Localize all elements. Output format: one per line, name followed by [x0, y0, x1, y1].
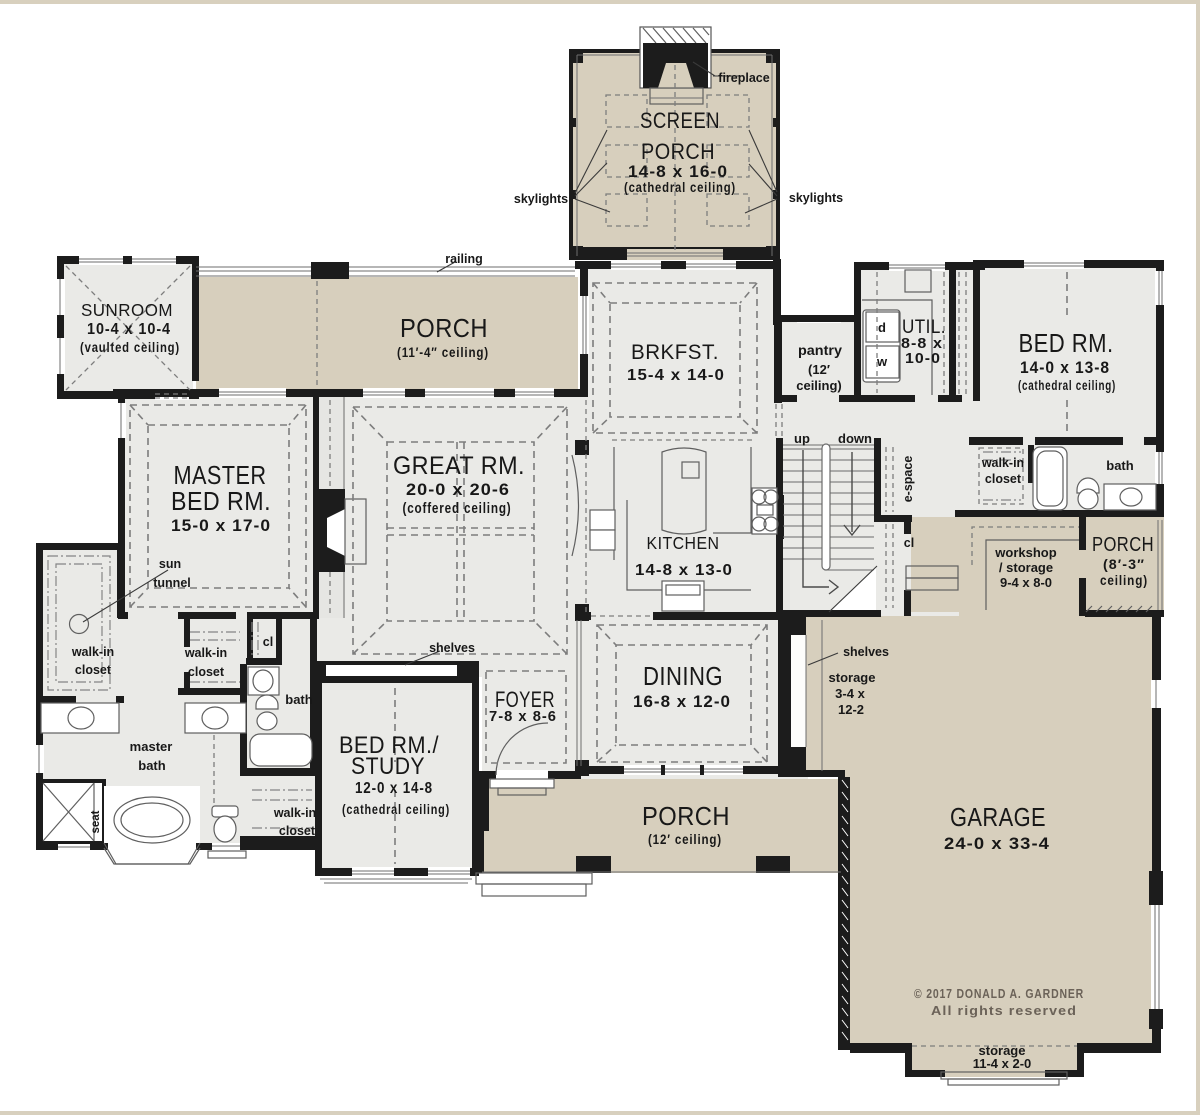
svg-text:down: down	[838, 431, 872, 446]
svg-text:11-4 x 2-0: 11-4 x 2-0	[973, 1056, 1032, 1071]
svg-text:(12′ ceiling): (12′ ceiling)	[648, 831, 722, 847]
svg-text:(coffered ceiling): (coffered ceiling)	[403, 501, 512, 517]
svg-text:12-2: 12-2	[838, 702, 864, 717]
svg-text:14-8 x 13-0: 14-8 x 13-0	[635, 562, 733, 579]
svg-text:16-8 x 12-0: 16-8 x 12-0	[633, 693, 731, 711]
svg-text:PORCH: PORCH	[1092, 534, 1154, 556]
svg-text:closet: closet	[75, 663, 112, 677]
svg-text:(8′-3″: (8′-3″	[1103, 557, 1145, 572]
svg-text:bath: bath	[138, 758, 166, 773]
svg-text:SCREEN: SCREEN	[640, 108, 720, 133]
svg-text:ceiling): ceiling)	[796, 378, 842, 393]
svg-text:closet: closet	[279, 824, 316, 838]
svg-text:skylights: skylights	[789, 191, 843, 205]
svg-text:walk-in: walk-in	[184, 646, 227, 660]
svg-text:master: master	[130, 739, 173, 754]
svg-text:closet: closet	[188, 665, 225, 679]
svg-text:cl: cl	[263, 635, 273, 649]
svg-text:ceiling): ceiling)	[1100, 573, 1148, 588]
svg-text:shelves: shelves	[429, 641, 475, 655]
svg-text:(cathedral ceiling): (cathedral ceiling)	[1018, 378, 1116, 393]
svg-text:fireplace: fireplace	[718, 71, 769, 85]
svg-text:up: up	[794, 431, 810, 446]
svg-text:3-4 x: 3-4 x	[835, 686, 865, 701]
svg-text:GARAGE: GARAGE	[950, 802, 1046, 832]
svg-text:All rights reserved: All rights reserved	[931, 1003, 1077, 1018]
svg-text:14-0 x 13-8: 14-0 x 13-8	[1020, 359, 1110, 377]
svg-text:sun: sun	[159, 557, 181, 571]
svg-text:d: d	[878, 320, 886, 335]
svg-text:walk-in: walk-in	[273, 806, 316, 820]
svg-text:closet: closet	[985, 472, 1022, 486]
svg-text:DINING: DINING	[643, 661, 723, 691]
svg-text:20-0 x 20-6: 20-0 x 20-6	[406, 480, 510, 499]
svg-text:(cathedral ceiling): (cathedral ceiling)	[624, 179, 736, 195]
svg-text:24-0 x 33-4: 24-0 x 33-4	[944, 834, 1050, 853]
svg-text:PORCH: PORCH	[642, 801, 730, 831]
svg-text:(12′: (12′	[808, 362, 830, 377]
svg-text:KITCHEN: KITCHEN	[647, 533, 720, 553]
svg-text:storage: storage	[829, 670, 876, 685]
svg-text:PORCH: PORCH	[400, 313, 488, 343]
svg-text:bath: bath	[1106, 458, 1134, 473]
svg-text:bath: bath	[285, 692, 313, 707]
svg-text:/ storage: / storage	[999, 560, 1053, 575]
svg-text:12-0 x 14-8: 12-0 x 14-8	[355, 780, 433, 797]
svg-text:seat: seat	[90, 810, 102, 833]
svg-text:(vaulted ceiling): (vaulted ceiling)	[80, 340, 180, 355]
svg-text:© 2017 DONALD A. GARDNER: © 2017 DONALD A. GARDNER	[914, 986, 1084, 1001]
svg-text:workshop: workshop	[994, 545, 1056, 560]
svg-text:cl: cl	[904, 536, 914, 550]
svg-text:e-space: e-space	[901, 456, 915, 503]
svg-text:SUNROOM: SUNROOM	[81, 300, 173, 320]
svg-text:(cathedral ceiling): (cathedral ceiling)	[342, 802, 450, 817]
svg-text:BED RM.: BED RM.	[171, 486, 271, 516]
svg-text:BED RM.: BED RM.	[1019, 328, 1114, 358]
svg-text:tunnel: tunnel	[153, 576, 191, 590]
svg-text:PORCH: PORCH	[641, 139, 715, 164]
svg-text:walk-in: walk-in	[981, 456, 1024, 470]
svg-text:15-4 x 14-0: 15-4 x 14-0	[627, 367, 725, 384]
svg-text:GREAT RM.: GREAT RM.	[393, 452, 525, 480]
svg-text:w: w	[876, 354, 888, 369]
svg-text:pantry: pantry	[798, 342, 842, 358]
svg-text:9-4 x 8-0: 9-4 x 8-0	[1000, 575, 1052, 590]
svg-text:walk-in: walk-in	[71, 645, 114, 659]
svg-text:15-0 x 17-0: 15-0 x 17-0	[171, 516, 271, 535]
svg-text:railing: railing	[445, 252, 483, 266]
svg-text:shelves: shelves	[843, 645, 889, 659]
svg-text:7-8 x 8-6: 7-8 x 8-6	[489, 709, 557, 725]
svg-text:(11′-4″ ceiling): (11′-4″ ceiling)	[397, 344, 489, 360]
svg-text:skylights: skylights	[514, 192, 568, 206]
svg-text:STUDY: STUDY	[351, 753, 425, 780]
svg-text:10-0: 10-0	[905, 350, 941, 367]
svg-text:BRKFST.: BRKFST.	[631, 341, 719, 364]
svg-text:10-4 x 10-4: 10-4 x 10-4	[87, 321, 171, 338]
